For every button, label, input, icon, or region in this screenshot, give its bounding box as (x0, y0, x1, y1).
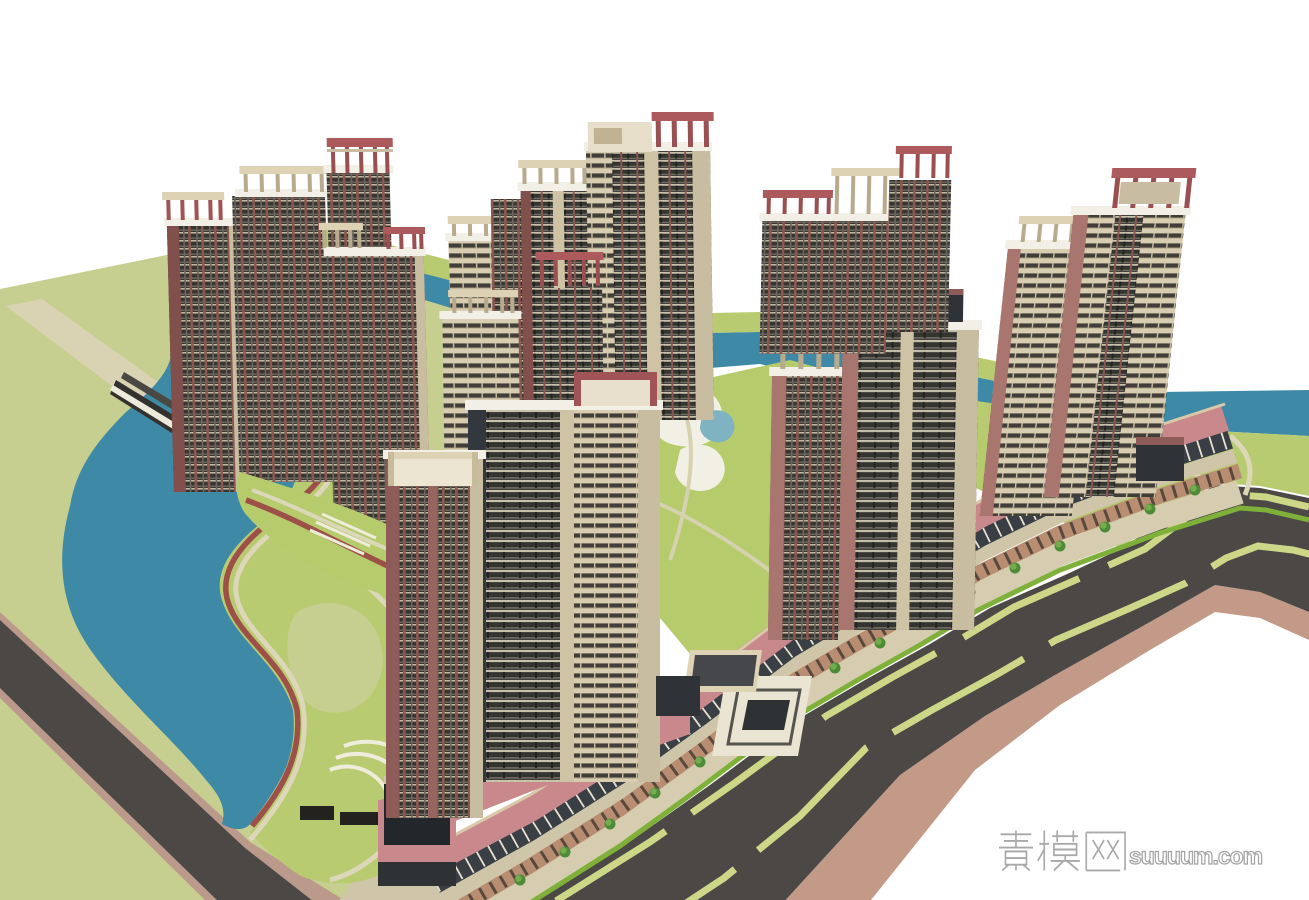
svg-text:suuuum.com: suuuum.com (1129, 843, 1263, 869)
